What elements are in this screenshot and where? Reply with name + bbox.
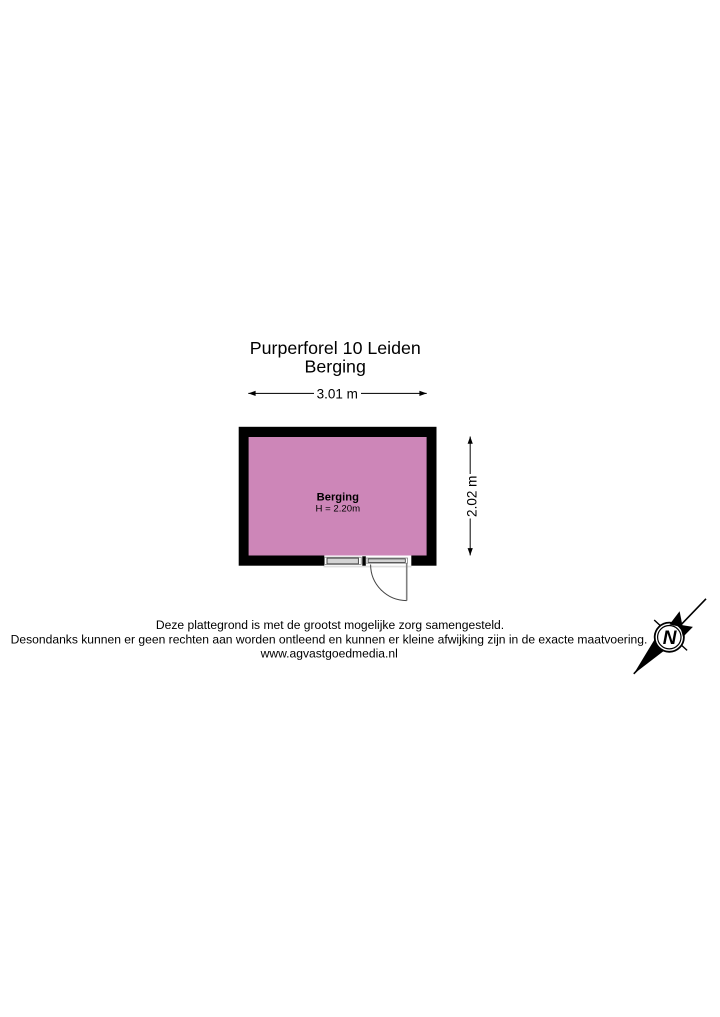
svg-text:Deze plattegrond is met de gro: Deze plattegrond is met de grootst mogel… xyxy=(156,618,504,632)
svg-text:2.02 m: 2.02 m xyxy=(464,476,479,517)
svg-text:3.01 m: 3.01 m xyxy=(317,386,358,401)
svg-text:N: N xyxy=(663,628,678,649)
svg-text:Berging: Berging xyxy=(317,492,359,504)
svg-text:Berging: Berging xyxy=(305,357,366,377)
svg-text:www.agvastgoedmedia.nl: www.agvastgoedmedia.nl xyxy=(260,646,398,660)
svg-text:Purperforel 10 Leiden: Purperforel 10 Leiden xyxy=(250,338,421,358)
svg-text:Desondanks kunnen er geen rech: Desondanks kunnen er geen rechten aan wo… xyxy=(11,633,648,647)
svg-text:H = 2.20m: H = 2.20m xyxy=(316,503,361,514)
